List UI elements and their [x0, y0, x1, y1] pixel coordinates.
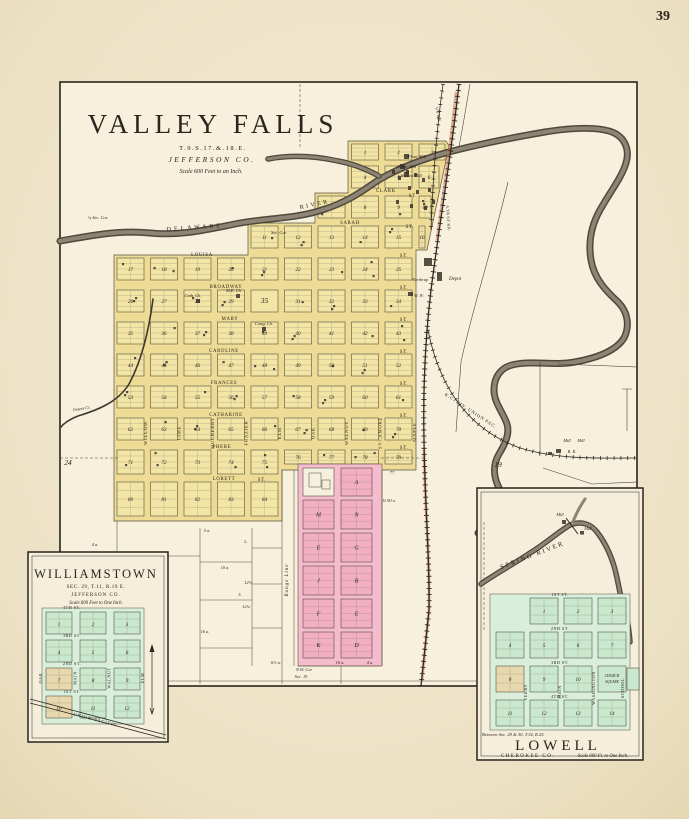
block-number: 24 — [362, 266, 368, 273]
building-mark — [235, 466, 237, 468]
block-number: 82 — [195, 497, 201, 503]
building-mark — [399, 213, 401, 215]
street-label: 2ND ST. — [63, 661, 81, 666]
block-number: 65 — [228, 427, 234, 433]
commercial-building-mark — [428, 188, 431, 192]
building-mark — [323, 454, 325, 456]
building-mark — [203, 334, 205, 336]
block-number: 58 — [295, 395, 301, 401]
block-number: 69 — [362, 427, 368, 433]
commercial-building-mark — [422, 178, 425, 182]
block-number: 57 — [262, 395, 268, 401]
street-label: PHEBE — [213, 445, 232, 450]
building-mark — [122, 263, 124, 265]
catholic-church-building — [196, 299, 200, 303]
block-number: 5 — [543, 643, 546, 649]
building-mark — [264, 454, 266, 456]
block-number: 19 — [195, 267, 201, 273]
street-label-vertical: WASHINGTON — [591, 671, 596, 705]
me-church-label: M.E. Ch. — [225, 288, 242, 293]
building-mark — [373, 275, 375, 277]
street-label-vertical: OAK — [38, 673, 43, 684]
block-number: 18 — [161, 267, 167, 273]
depot-label: Depot — [448, 277, 462, 282]
block-number: 50 — [329, 363, 335, 369]
block-number: 25 — [396, 267, 402, 273]
williamstown-title: WILLIAMSTOWN — [34, 567, 158, 581]
lowell-county-line: CHEROKEE CO. — [501, 754, 555, 759]
block-number: 2 — [397, 150, 400, 156]
street-suffix-label: ST. — [400, 318, 409, 323]
lowell-mill-building-2 — [580, 531, 584, 535]
block-number: 76 — [295, 455, 301, 461]
building-mark — [134, 357, 136, 359]
acreage-label: 4 a. — [367, 660, 374, 665]
building-mark — [205, 331, 207, 333]
street-label: SARAH — [340, 221, 360, 226]
block-number: 5 — [92, 650, 95, 656]
block-number: 3 — [126, 622, 129, 628]
addition-block-letter: A — [354, 480, 359, 486]
building-mark — [392, 436, 394, 438]
acreage-label: 6½ a. — [271, 660, 281, 665]
street-label-vertical: SCHOOL — [620, 678, 625, 698]
water-works-building — [408, 292, 413, 296]
block-number: 59 — [329, 395, 335, 401]
block-number: 11 — [262, 235, 267, 241]
quarter-sec-cor-label: ¼ Sec. Cor. — [88, 215, 108, 220]
block-number: 77 — [329, 455, 335, 461]
williamstown-blocks: 1234567891011124TH ST.3RD ST.2ND ST.1ST … — [38, 605, 145, 718]
building-mark — [173, 270, 175, 272]
block-number: 64 — [195, 426, 201, 433]
building-mark — [324, 399, 326, 401]
block-number: 1 — [364, 150, 367, 156]
block-number: 8 — [92, 678, 95, 684]
sec-cor-label: Sec. Cor. — [271, 230, 287, 235]
block-number: 56 — [228, 395, 234, 401]
flour-mill-label-2: Flour Mill — [397, 164, 417, 169]
street-label-vertical: WALNUT — [107, 667, 112, 688]
street-suffix-label: ST. — [406, 225, 415, 230]
commercial-building-mark — [392, 170, 395, 174]
mill-label: Mill — [576, 438, 585, 443]
lowell-block-small — [627, 668, 639, 690]
me-church-building — [236, 294, 240, 298]
block-number: 27 — [161, 299, 167, 305]
block-number: 44 — [128, 362, 134, 369]
block-number: 68 — [329, 427, 335, 433]
street-label-vertical: MAIN — [557, 685, 562, 699]
block-number: 4 — [509, 642, 512, 649]
street-label: MARY — [222, 317, 239, 322]
addition-block-letter: D — [353, 643, 359, 649]
building-mark — [355, 456, 357, 458]
building-mark — [261, 274, 263, 276]
church-square-label: CHURCH — [605, 674, 620, 678]
addition-block-letter: J — [317, 579, 320, 585]
acreage-label: 10 a. — [221, 565, 230, 570]
street-suffix-label: ST. — [400, 414, 409, 419]
block-number: 11 — [508, 711, 513, 717]
block-number: 12 — [295, 235, 301, 241]
street-label: 3RD ST. — [551, 660, 569, 665]
building-mark — [236, 395, 238, 397]
block-number: 6 — [428, 175, 431, 181]
building-mark — [403, 339, 405, 341]
block-number: 14 — [362, 234, 368, 241]
block-number: 1 — [58, 622, 61, 628]
building-mark — [390, 305, 392, 307]
williamstown-county-line: JEFFERSON CO. — [71, 593, 120, 598]
building-mark — [266, 466, 268, 468]
block-number: 53 — [128, 395, 134, 401]
block-number: 39 — [262, 331, 268, 337]
street-label-vertical: FRAZIER — [244, 420, 249, 445]
acreage-label: 11.90 a. — [382, 498, 396, 503]
building-mark — [125, 464, 127, 466]
building-mark — [389, 231, 391, 233]
block-number: 35 — [128, 331, 134, 337]
street-label: 1ST ST. — [63, 689, 80, 694]
acreage-label: 12¼ — [242, 604, 250, 609]
section-24-number: 24 — [64, 458, 72, 467]
acreage-label: 10 a. — [336, 660, 345, 665]
block-number: 42 — [362, 330, 368, 337]
building-mark — [302, 301, 304, 303]
building-mark — [391, 228, 393, 230]
addition-block-letter: E — [316, 546, 321, 552]
street-label: 4TH ST. — [63, 605, 81, 610]
building-mark — [306, 429, 308, 431]
street-label-vertical: WALNUT — [344, 421, 349, 445]
block-number: 74 — [228, 459, 234, 466]
building-mark — [374, 452, 376, 454]
scale-line: Scale 600 Feet to an Inch. — [180, 169, 243, 175]
rr-abbrev-label: R. R. — [567, 449, 577, 454]
block-number: 4 — [58, 649, 61, 656]
northrup-building — [424, 258, 432, 266]
block-number: 29 — [228, 299, 234, 305]
woolen-mill-label: Woolen Mill — [400, 173, 422, 178]
street-label-vertical: MAPLE — [412, 422, 417, 442]
mill-label: Mill — [562, 438, 571, 443]
block-number: 66 — [262, 427, 268, 433]
building-mark — [124, 394, 126, 396]
street-suffix-label: ST. — [400, 254, 409, 259]
building-mark — [333, 305, 335, 307]
block-number: 12 — [541, 711, 547, 717]
block-number: 75 — [262, 460, 268, 466]
block-number: 61 — [396, 395, 402, 401]
building-mark — [204, 391, 206, 393]
street-label: 3RD ST. — [63, 633, 81, 638]
building-mark — [372, 335, 374, 337]
county-line: JEFFERSON CO. — [168, 155, 255, 164]
lowell-mill-label: Mill — [555, 512, 564, 517]
building-mark — [165, 421, 167, 423]
block-number: 4 — [364, 174, 367, 181]
lowell-title: LOWELL — [515, 738, 601, 754]
building-mark — [157, 464, 159, 466]
block-number: 60 — [362, 395, 368, 401]
building-mark — [303, 241, 305, 243]
map-title: VALLEY FALLS — [88, 109, 339, 139]
block-number: 72 — [161, 460, 167, 466]
building-mark — [154, 267, 156, 269]
plaza-block-number: 35 — [260, 296, 269, 305]
block-number: 31 — [295, 299, 301, 305]
addition-block-letter: G — [354, 546, 359, 552]
northrup-label: Northrup — [411, 277, 429, 282]
block-number: 71 — [128, 460, 134, 466]
block-number: 15 — [396, 235, 402, 241]
block-number: 52 — [396, 363, 402, 369]
street-label: CAROLINE — [209, 349, 239, 354]
block-number: 48 — [262, 362, 268, 369]
street-label: FRANCES — [211, 381, 238, 386]
block-number: 26 — [128, 299, 134, 305]
block-number: 33 — [362, 299, 368, 305]
block-number: 16 — [419, 235, 425, 241]
commercial-building-mark — [424, 206, 427, 210]
block-number: 63 — [161, 427, 167, 433]
street-label: LORETT — [213, 477, 236, 482]
acreage-label: 16 a. — [201, 629, 210, 634]
street-suffix-label: ST. — [400, 446, 409, 451]
nw-cor-sec-label: Sec. 19 — [295, 674, 308, 679]
section-19-number: 19 — [494, 460, 502, 469]
catholic-church-label: Cath. Ch. — [185, 293, 202, 298]
building-mark — [234, 398, 236, 400]
block-number: 83 — [228, 497, 234, 503]
block-number: 17 — [128, 267, 134, 273]
acreage-label: 5 a. — [204, 528, 211, 533]
street-label-vertical: ELM — [277, 427, 282, 439]
building-mark — [274, 425, 276, 427]
building-mark — [271, 237, 273, 239]
building-mark — [254, 365, 256, 367]
building-mark — [223, 361, 225, 363]
block-number: 23 — [329, 267, 335, 273]
congregational-church-building — [262, 327, 266, 331]
block-number: 38 — [228, 331, 234, 337]
acreage-label: 12½ — [244, 580, 252, 585]
building-mark — [224, 301, 226, 303]
block-number: 62 — [128, 427, 134, 433]
block-number: 41 — [329, 330, 335, 337]
acreage-label: 4 a. — [92, 542, 99, 547]
block-number: 21 — [262, 267, 268, 273]
street-label-vertical: MULBERRY — [210, 417, 215, 449]
street-suffix-label: ST. — [400, 286, 409, 291]
street-label: 1ST ST. — [551, 592, 568, 597]
block-number: 43 — [396, 330, 402, 337]
block-number: 10 — [575, 677, 581, 683]
street-label: 2ND ST. — [551, 626, 569, 631]
building-mark — [362, 372, 364, 374]
church-square-label: SQUARE — [605, 680, 619, 684]
williamstown-section-line: SEC. 29, T.11, R.19 E. — [67, 585, 126, 590]
block-number: 36 — [161, 331, 167, 337]
block-number: 20 — [228, 267, 234, 273]
commercial-building-mark — [432, 200, 435, 204]
street-label-vertical: WILLOW — [143, 421, 148, 445]
building-mark — [301, 244, 303, 246]
block-number: 2 — [92, 622, 95, 628]
block-number: 1 — [543, 609, 546, 615]
commercial-building-mark — [408, 186, 411, 190]
township-line: T.9.S.17.&.18.E. — [179, 145, 247, 152]
lowell-mill-label-2: Mill — [583, 526, 592, 531]
street-suffix-label: ST. — [409, 194, 418, 199]
block-number: 14 — [609, 710, 615, 717]
commercial-building-mark — [416, 190, 419, 194]
block-number: 9 — [126, 678, 129, 684]
block-number: 73 — [195, 460, 201, 466]
water-works-label: W. W. — [414, 293, 424, 298]
street-label-vertical: FERRY — [523, 684, 528, 700]
block-number: 13 — [329, 235, 335, 241]
block-number: 51 — [362, 363, 368, 369]
nw-cor-label: N.W. Cor — [295, 667, 313, 672]
street-suffix-label: ST. — [400, 382, 409, 387]
flour-mill-label: Flour Mill — [407, 154, 427, 159]
addition-block-letter: F — [316, 612, 321, 618]
building-mark — [304, 432, 306, 434]
lowell-mill-building — [562, 520, 566, 524]
block-number: 54 — [161, 394, 167, 401]
street-label-vertical: LIME — [177, 426, 182, 440]
acreage-label: L. — [243, 539, 248, 544]
congregational-church-label: Cong. Ch. — [255, 321, 273, 326]
block-number: 9 — [397, 205, 400, 211]
addition-block-letter: E — [354, 612, 359, 618]
building-mark — [126, 391, 128, 393]
block-number: 7 — [58, 678, 61, 684]
block-number: 32 — [329, 299, 335, 305]
block-number: 80 — [128, 497, 134, 503]
building-mark — [394, 433, 396, 435]
building-mark — [133, 300, 135, 302]
mill-building — [548, 452, 552, 455]
block-number: 46 — [195, 362, 201, 369]
block-number: 47 — [228, 362, 234, 369]
block-number: 7 — [611, 643, 614, 649]
addition-white-block — [303, 468, 334, 496]
building-mark — [293, 395, 295, 397]
block-number: 8 — [509, 677, 512, 683]
lowell-scale-line: Scale 600 Ft. to One Inch. — [578, 754, 629, 759]
street-suffix-label: ST. — [400, 350, 409, 355]
block-number: 67 — [295, 427, 301, 433]
building-mark — [292, 338, 294, 340]
street-label: CLARK — [376, 189, 396, 194]
street-label-vertical: SYCAMORE — [378, 417, 383, 449]
block-number: 13 — [575, 711, 581, 717]
commercial-building-mark — [396, 200, 399, 204]
commercial-building-mark — [410, 204, 413, 208]
building-mark — [341, 271, 343, 273]
block-number: 3 — [611, 609, 614, 615]
block-number: 49 — [295, 362, 301, 369]
block-number: 84 — [262, 496, 268, 503]
building-mark — [331, 308, 333, 310]
block-number: 8 — [364, 205, 367, 211]
block-number: 2 — [577, 609, 580, 615]
acreage-label: 5. — [238, 592, 241, 597]
mill-building — [556, 449, 561, 453]
block-number: 11 — [91, 706, 96, 712]
block-number: 22 — [295, 267, 301, 273]
building-mark — [402, 399, 404, 401]
building-mark — [371, 261, 373, 263]
block-number: 34 — [396, 298, 402, 305]
building-mark — [155, 452, 157, 454]
block-number: 40 — [295, 330, 301, 337]
street-label-vertical: ELM — [140, 673, 145, 684]
block-number: 6 — [126, 650, 129, 656]
building-mark — [401, 325, 403, 327]
block-number: 9 — [543, 677, 546, 683]
building-mark — [273, 368, 275, 370]
block-number: 45 — [161, 362, 167, 369]
building-mark — [422, 200, 424, 202]
page-number: 39 — [656, 9, 670, 24]
street-label-vertical: OAK — [311, 427, 316, 439]
plat-map-svg: 39 1234567891011121314151617181920212223… — [0, 0, 689, 819]
block-number: 6 — [577, 643, 580, 649]
block-number: 70 — [396, 427, 402, 433]
building-mark — [360, 241, 362, 243]
building-mark — [322, 402, 324, 404]
building-mark — [222, 304, 224, 306]
street-label-vertical: MAIN — [73, 671, 78, 685]
addition-block-letter: B — [355, 579, 359, 585]
block-number: 81 — [161, 497, 167, 503]
building-mark — [135, 297, 137, 299]
block-number: 55 — [195, 395, 201, 401]
building-mark — [364, 369, 366, 371]
street-label: LOUISA — [191, 253, 213, 258]
block-number: 78 — [362, 455, 368, 461]
block-number: 37 — [195, 331, 201, 337]
addition-block-letter: M — [315, 513, 322, 519]
street-suffix-label: ST. — [258, 478, 267, 483]
depot-building — [437, 272, 442, 281]
atlas-page: 39 1234567891011121314151617181920212223… — [0, 0, 689, 819]
range-line-label: Range Line — [285, 564, 290, 598]
building-mark — [174, 327, 176, 329]
block-number: 12 — [124, 706, 130, 712]
